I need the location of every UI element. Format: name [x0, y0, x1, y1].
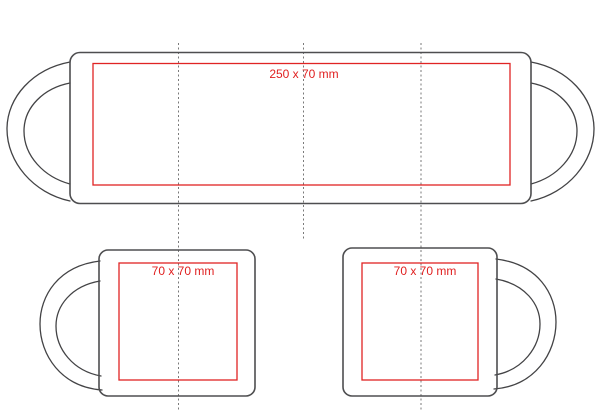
mug-right-side-view: 70 x 70 mm	[343, 248, 556, 396]
right-view-handle-outer-curve	[494, 259, 556, 389]
wrap-left-handle-inner-curve	[24, 83, 70, 184]
mug-left-side-view: 70 x 70 mm	[40, 250, 255, 396]
right-view-print-area-label: 70 x 70 mm	[394, 264, 457, 278]
wrap-print-area	[93, 64, 510, 186]
mug-print-template-diagram: 250 x 70 mm 70 x 70 mm 70 x 70 mm	[0, 0, 600, 413]
left-view-print-area-label: 70 x 70 mm	[152, 264, 215, 278]
wrap-print-area-label: 250 x 70 mm	[269, 67, 338, 81]
right-view-handle-inner-curve	[495, 279, 540, 375]
mug-wrap-view: 250 x 70 mm	[7, 53, 594, 204]
right-view-print-area	[362, 263, 478, 380]
left-view-handle-inner-curve	[56, 281, 101, 376]
left-view-print-area	[119, 263, 237, 380]
left-view-handle-outer-curve	[40, 261, 102, 390]
wrap-right-handle-inner-curve	[531, 83, 577, 184]
mug-template-canvas: 250 x 70 mm 70 x 70 mm 70 x 70 mm	[0, 0, 600, 413]
guide-lines	[179, 43, 422, 410]
